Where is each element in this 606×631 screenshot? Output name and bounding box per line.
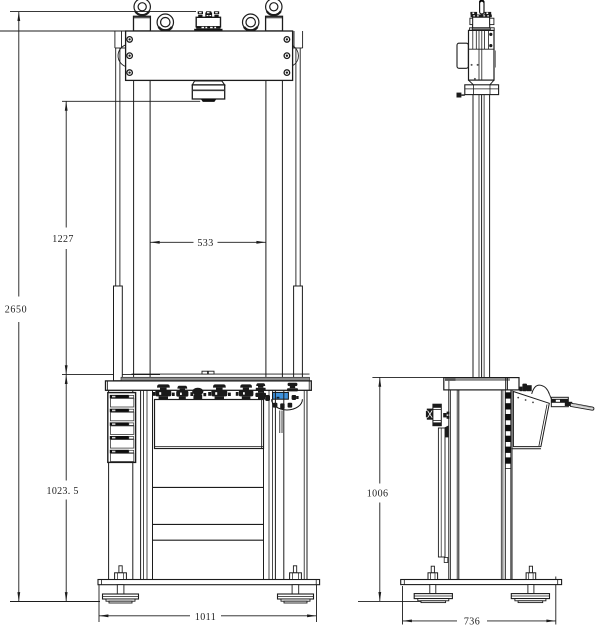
svg-text:1227: 1227 [52, 234, 74, 245]
svg-text:1023. 5: 1023. 5 [47, 486, 79, 497]
svg-text:533: 533 [197, 238, 213, 249]
svg-text:2650: 2650 [5, 305, 27, 316]
svg-text:736: 736 [464, 617, 480, 628]
svg-text:1006: 1006 [367, 489, 389, 500]
svg-text:1011: 1011 [195, 612, 216, 623]
